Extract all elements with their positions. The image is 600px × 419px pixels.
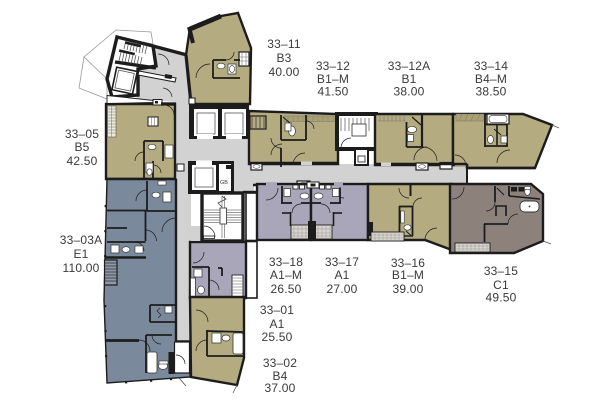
svg-text:38.50: 38.50 [475, 85, 506, 99]
svg-text:26.50: 26.50 [270, 282, 301, 296]
svg-text:27.00: 27.00 [326, 282, 357, 296]
svg-text:33–18: 33–18 [269, 255, 303, 269]
svg-text:33–14: 33–14 [474, 59, 508, 73]
svg-text:33–02: 33–02 [263, 356, 297, 370]
svg-text:B1–M: B1–M [392, 268, 424, 282]
svg-text:33–15: 33–15 [484, 264, 518, 278]
svg-text:E1: E1 [73, 247, 88, 261]
svg-text:A1: A1 [334, 268, 349, 282]
svg-text:40.00: 40.00 [268, 65, 299, 79]
svg-text:33–17: 33–17 [325, 255, 359, 269]
svg-text:49.50: 49.50 [485, 291, 516, 305]
svg-text:42.50: 42.50 [66, 154, 97, 168]
svg-text:38.00: 38.00 [393, 85, 424, 99]
svg-text:41.50: 41.50 [317, 85, 348, 99]
svg-text:33–01: 33–01 [260, 303, 294, 317]
svg-text:33–11: 33–11 [267, 37, 301, 51]
svg-text:B5: B5 [74, 140, 89, 154]
svg-text:A1: A1 [269, 317, 284, 331]
svg-text:33–03A: 33–03A [60, 233, 103, 247]
svg-text:B3: B3 [276, 51, 291, 65]
svg-text:33–12A: 33–12A [388, 59, 431, 73]
svg-text:A1–M: A1–M [270, 268, 302, 282]
svg-text:110.00: 110.00 [62, 261, 99, 275]
svg-text:33–05: 33–05 [65, 127, 99, 141]
svg-text:37.00: 37.00 [264, 381, 295, 395]
svg-text:25.50: 25.50 [261, 330, 292, 344]
svg-text:33–12: 33–12 [316, 59, 350, 73]
svg-text:39.00: 39.00 [392, 282, 423, 296]
svg-text:GB: GB [220, 180, 228, 186]
